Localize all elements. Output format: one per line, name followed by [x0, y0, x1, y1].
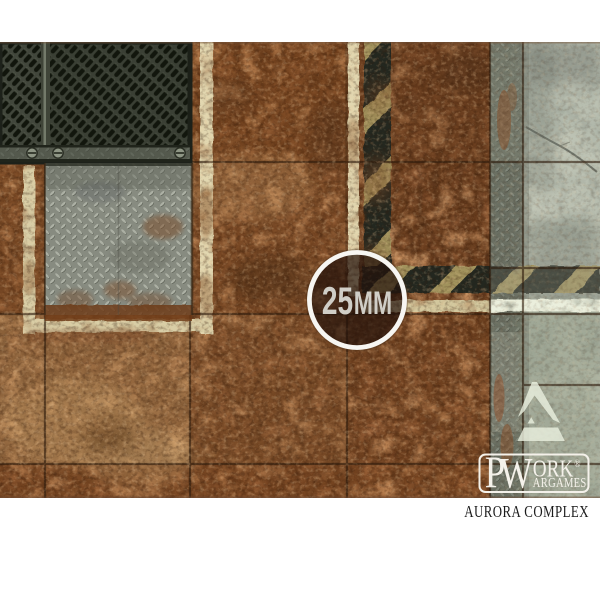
svg-text:AURORA COMPLEX: AURORA COMPLEX	[464, 504, 589, 522]
svg-text:®: ®	[574, 458, 580, 469]
svg-text:ARGAMES: ARGAMES	[533, 475, 587, 490]
svg-text:W: W	[500, 450, 533, 497]
svg-text:25MM: 25MM	[322, 280, 392, 324]
